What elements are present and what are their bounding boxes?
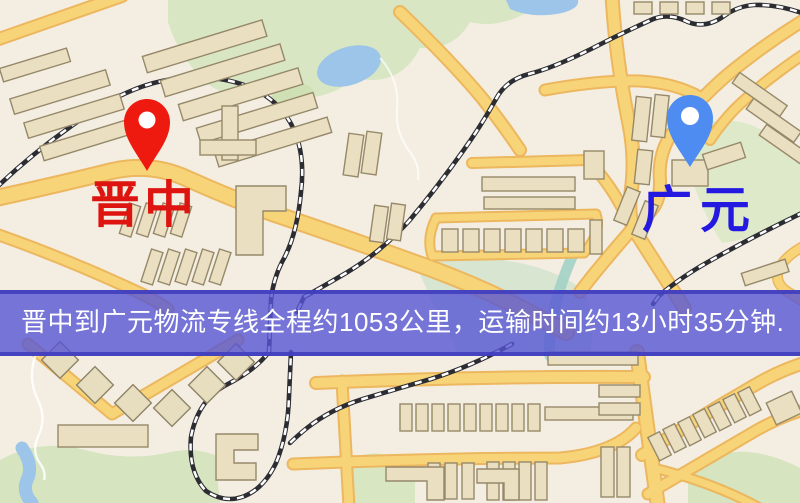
map-canvas[interactable]: 晋中 广元 [0, 0, 800, 503]
building [432, 404, 444, 431]
building [712, 2, 730, 14]
building [462, 463, 474, 499]
road [436, 214, 596, 218]
building [448, 404, 460, 431]
building [601, 447, 614, 497]
pin-hole [681, 107, 699, 125]
river-water [22, 448, 32, 503]
building [535, 462, 547, 500]
building [526, 229, 542, 252]
route-info-banner: 晋中到广元物流专线全程约1053公里，运输时间约13小时35分钟. [0, 290, 800, 356]
building [547, 229, 563, 252]
pin-hole [139, 112, 156, 129]
building [58, 425, 148, 447]
origin-label: 晋中 [90, 177, 198, 233]
building [568, 229, 584, 252]
building [660, 2, 678, 14]
building [590, 220, 602, 254]
building [634, 149, 652, 184]
route-info-text: 晋中到广元物流专线全程约1053公里，运输时间约13小时35分钟. [0, 294, 800, 351]
building [442, 229, 458, 252]
destination-label: 广元 [642, 182, 758, 238]
building [480, 404, 492, 431]
building [464, 404, 476, 431]
building [617, 447, 630, 497]
building [528, 404, 540, 431]
road [432, 253, 584, 256]
building [445, 463, 457, 499]
building [686, 2, 704, 14]
building [484, 197, 575, 209]
building [505, 229, 521, 252]
building [416, 404, 428, 431]
building [482, 177, 575, 191]
building [599, 385, 640, 397]
building [400, 404, 412, 431]
building [484, 229, 500, 252]
building [599, 403, 640, 415]
building [200, 140, 256, 155]
building [584, 151, 604, 179]
building [463, 229, 479, 252]
building [496, 404, 508, 431]
road [472, 160, 588, 163]
map-image: 晋中 广元 晋中到广元物流专线全程约1053公里，运输时间约13小时35分钟. [0, 0, 800, 503]
building [512, 404, 524, 431]
building [634, 2, 652, 14]
building [519, 462, 531, 500]
